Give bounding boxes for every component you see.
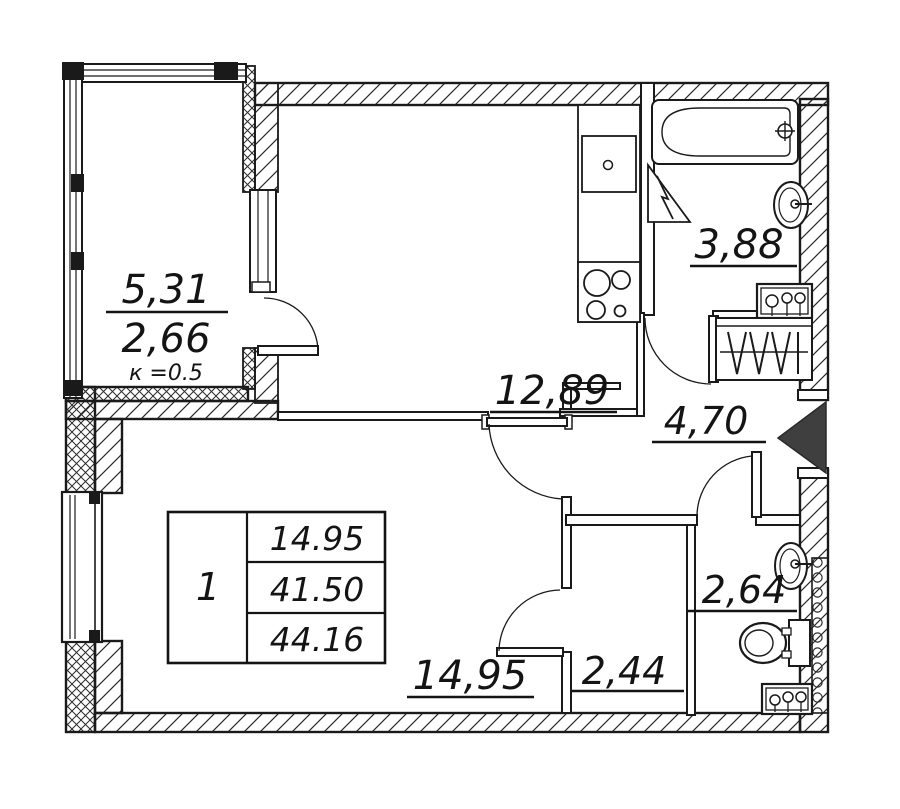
wc-door	[697, 452, 761, 517]
wall-wc-top	[756, 515, 800, 525]
kitchen-fixtures	[578, 105, 640, 322]
area-table: 1 14.95 41.50 44.16	[168, 512, 385, 663]
wall-kitchen-living	[278, 412, 488, 420]
wall-left-inner-lower	[95, 641, 122, 713]
wc-area-value: 2,64	[702, 568, 787, 612]
bathroom-label: 3,88	[690, 222, 797, 268]
hallway-area-value: 4,70	[664, 399, 749, 443]
hallway-label: 4,70	[652, 399, 766, 443]
bathroom-door-swing	[645, 318, 711, 384]
balcony-right-wall-cross-lower	[243, 348, 255, 389]
table-total-area: 44.16	[270, 620, 364, 659]
glazing-mullion	[64, 380, 81, 396]
kitchen-area-value: 12,89	[495, 368, 610, 414]
balcony-right-wall-cross-upper	[243, 66, 255, 192]
stove-burner	[612, 271, 630, 289]
balcony-label: 5,31 2,66 к =0.5	[106, 267, 228, 386]
balcony-right-wall-hatch-lower	[255, 348, 278, 403]
wall-living-hall-upper	[562, 497, 571, 588]
floor-plan: 5,31 2,66 к =0.5 12,89 3,88 4,70 2,64 2,…	[0, 0, 900, 809]
glazing-mullion	[214, 62, 238, 80]
wall-right-insulation	[812, 558, 828, 713]
table-area-without-balcony: 41.50	[270, 570, 364, 609]
kitchen-door	[482, 415, 572, 499]
entrance-arrow	[778, 402, 826, 473]
wall-living-closet-lower	[562, 652, 571, 713]
living-area-value: 14,95	[413, 653, 528, 699]
balcony-coef-value: к =0.5	[129, 361, 203, 386]
wall-left-inner-upper	[95, 419, 122, 493]
glazing-mullion	[71, 252, 84, 270]
balcony-area-value: 5,31	[121, 267, 210, 313]
water-meter-box	[762, 684, 812, 714]
toilet-tank	[789, 620, 810, 666]
entrance-door	[778, 390, 828, 478]
kitchen-label: 12,89	[490, 368, 617, 414]
closet-area-value: 2,44	[582, 649, 667, 693]
balcony-door-leaf	[258, 346, 318, 355]
stove-burner	[584, 270, 610, 296]
glazing-mullion	[62, 62, 84, 80]
wc-door-leaf	[752, 452, 761, 517]
balcony-block-sill	[252, 282, 270, 292]
bathroom-door	[645, 316, 718, 384]
balcony-reduced-value: 2,66	[121, 316, 210, 362]
kitchen-door-swing	[489, 424, 562, 499]
wc-door-swing	[697, 456, 752, 515]
hallway-wardrobe	[716, 318, 812, 380]
bathroom-area-value: 3,88	[694, 222, 783, 268]
floor-plan-drawing: 5,31 2,66 к =0.5 12,89 3,88 4,70 2,64 2,…	[0, 0, 900, 809]
wall-hall-left	[637, 313, 644, 416]
closet-label: 2,44	[572, 649, 684, 693]
wall-closet-wc	[687, 525, 695, 715]
balcony-right-wall-hatch-upper	[255, 83, 278, 192]
balcony-door-swing	[264, 298, 318, 352]
balcony-block-window	[250, 190, 276, 292]
living-room-window	[62, 492, 102, 642]
wall-closet-top	[566, 515, 697, 525]
balcony-floor-band	[66, 387, 248, 401]
balcony-door-block	[250, 190, 318, 355]
wc-label: 2,64	[687, 568, 797, 612]
kitchen-sink-drain	[604, 161, 613, 170]
wall-under-balcony	[66, 401, 278, 419]
toilet	[740, 620, 810, 666]
water-heater-box	[757, 284, 812, 318]
bathtub	[652, 100, 798, 164]
table-living-area: 14.95	[270, 519, 364, 558]
balcony-window-left	[64, 64, 82, 398]
living-label: 14,95	[407, 653, 534, 699]
glazing-mullion	[71, 174, 84, 192]
vent-shaft	[648, 165, 690, 222]
table-rooms-count: 1	[196, 565, 220, 609]
living-door-swing	[499, 590, 560, 651]
stove-burner	[587, 301, 605, 319]
stove-burner	[615, 306, 626, 317]
living-room-door	[497, 590, 563, 656]
kitchen-door-leaf	[487, 418, 567, 426]
